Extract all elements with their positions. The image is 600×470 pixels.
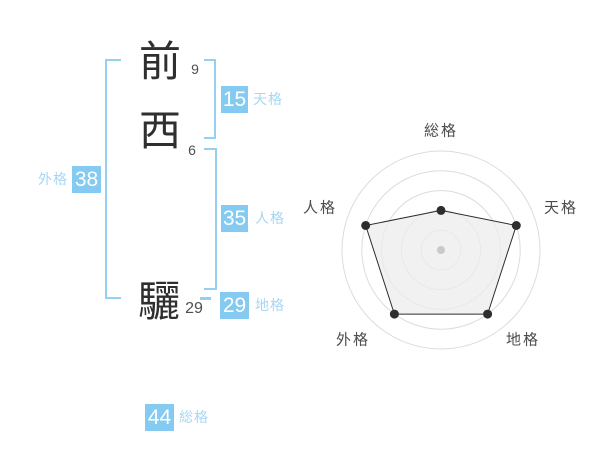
radar-chart bbox=[0, 0, 600, 470]
radar-axis-label-gaikaku: 外格 bbox=[336, 329, 370, 350]
radar-axis-label-tenkaku: 天格 bbox=[544, 197, 578, 218]
radar-axis-label-jinkaku: 人格 bbox=[303, 197, 337, 218]
radar-axis-label-chikaku: 地格 bbox=[506, 329, 540, 350]
name-analysis-panel: 前 9 西 6 驪 29 15 天格 35 人格 29 地格 外格 38 44 … bbox=[0, 0, 600, 470]
radar-axis-label-soukaku: 総格 bbox=[424, 120, 458, 141]
